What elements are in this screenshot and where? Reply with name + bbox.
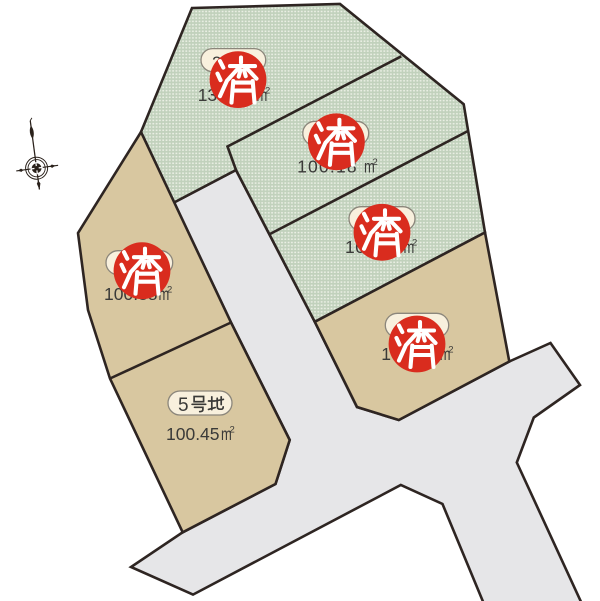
svg-text:5: 5 [178,395,189,416]
svg-text:2: 2 [230,425,235,436]
svg-text:2: 2 [373,157,378,168]
svg-text:2: 2 [265,86,270,97]
svg-text:2: 2 [412,238,417,249]
svg-text:100.45: 100.45 [166,424,220,444]
svg-text:2: 2 [448,345,453,356]
svg-text:2: 2 [167,285,172,296]
